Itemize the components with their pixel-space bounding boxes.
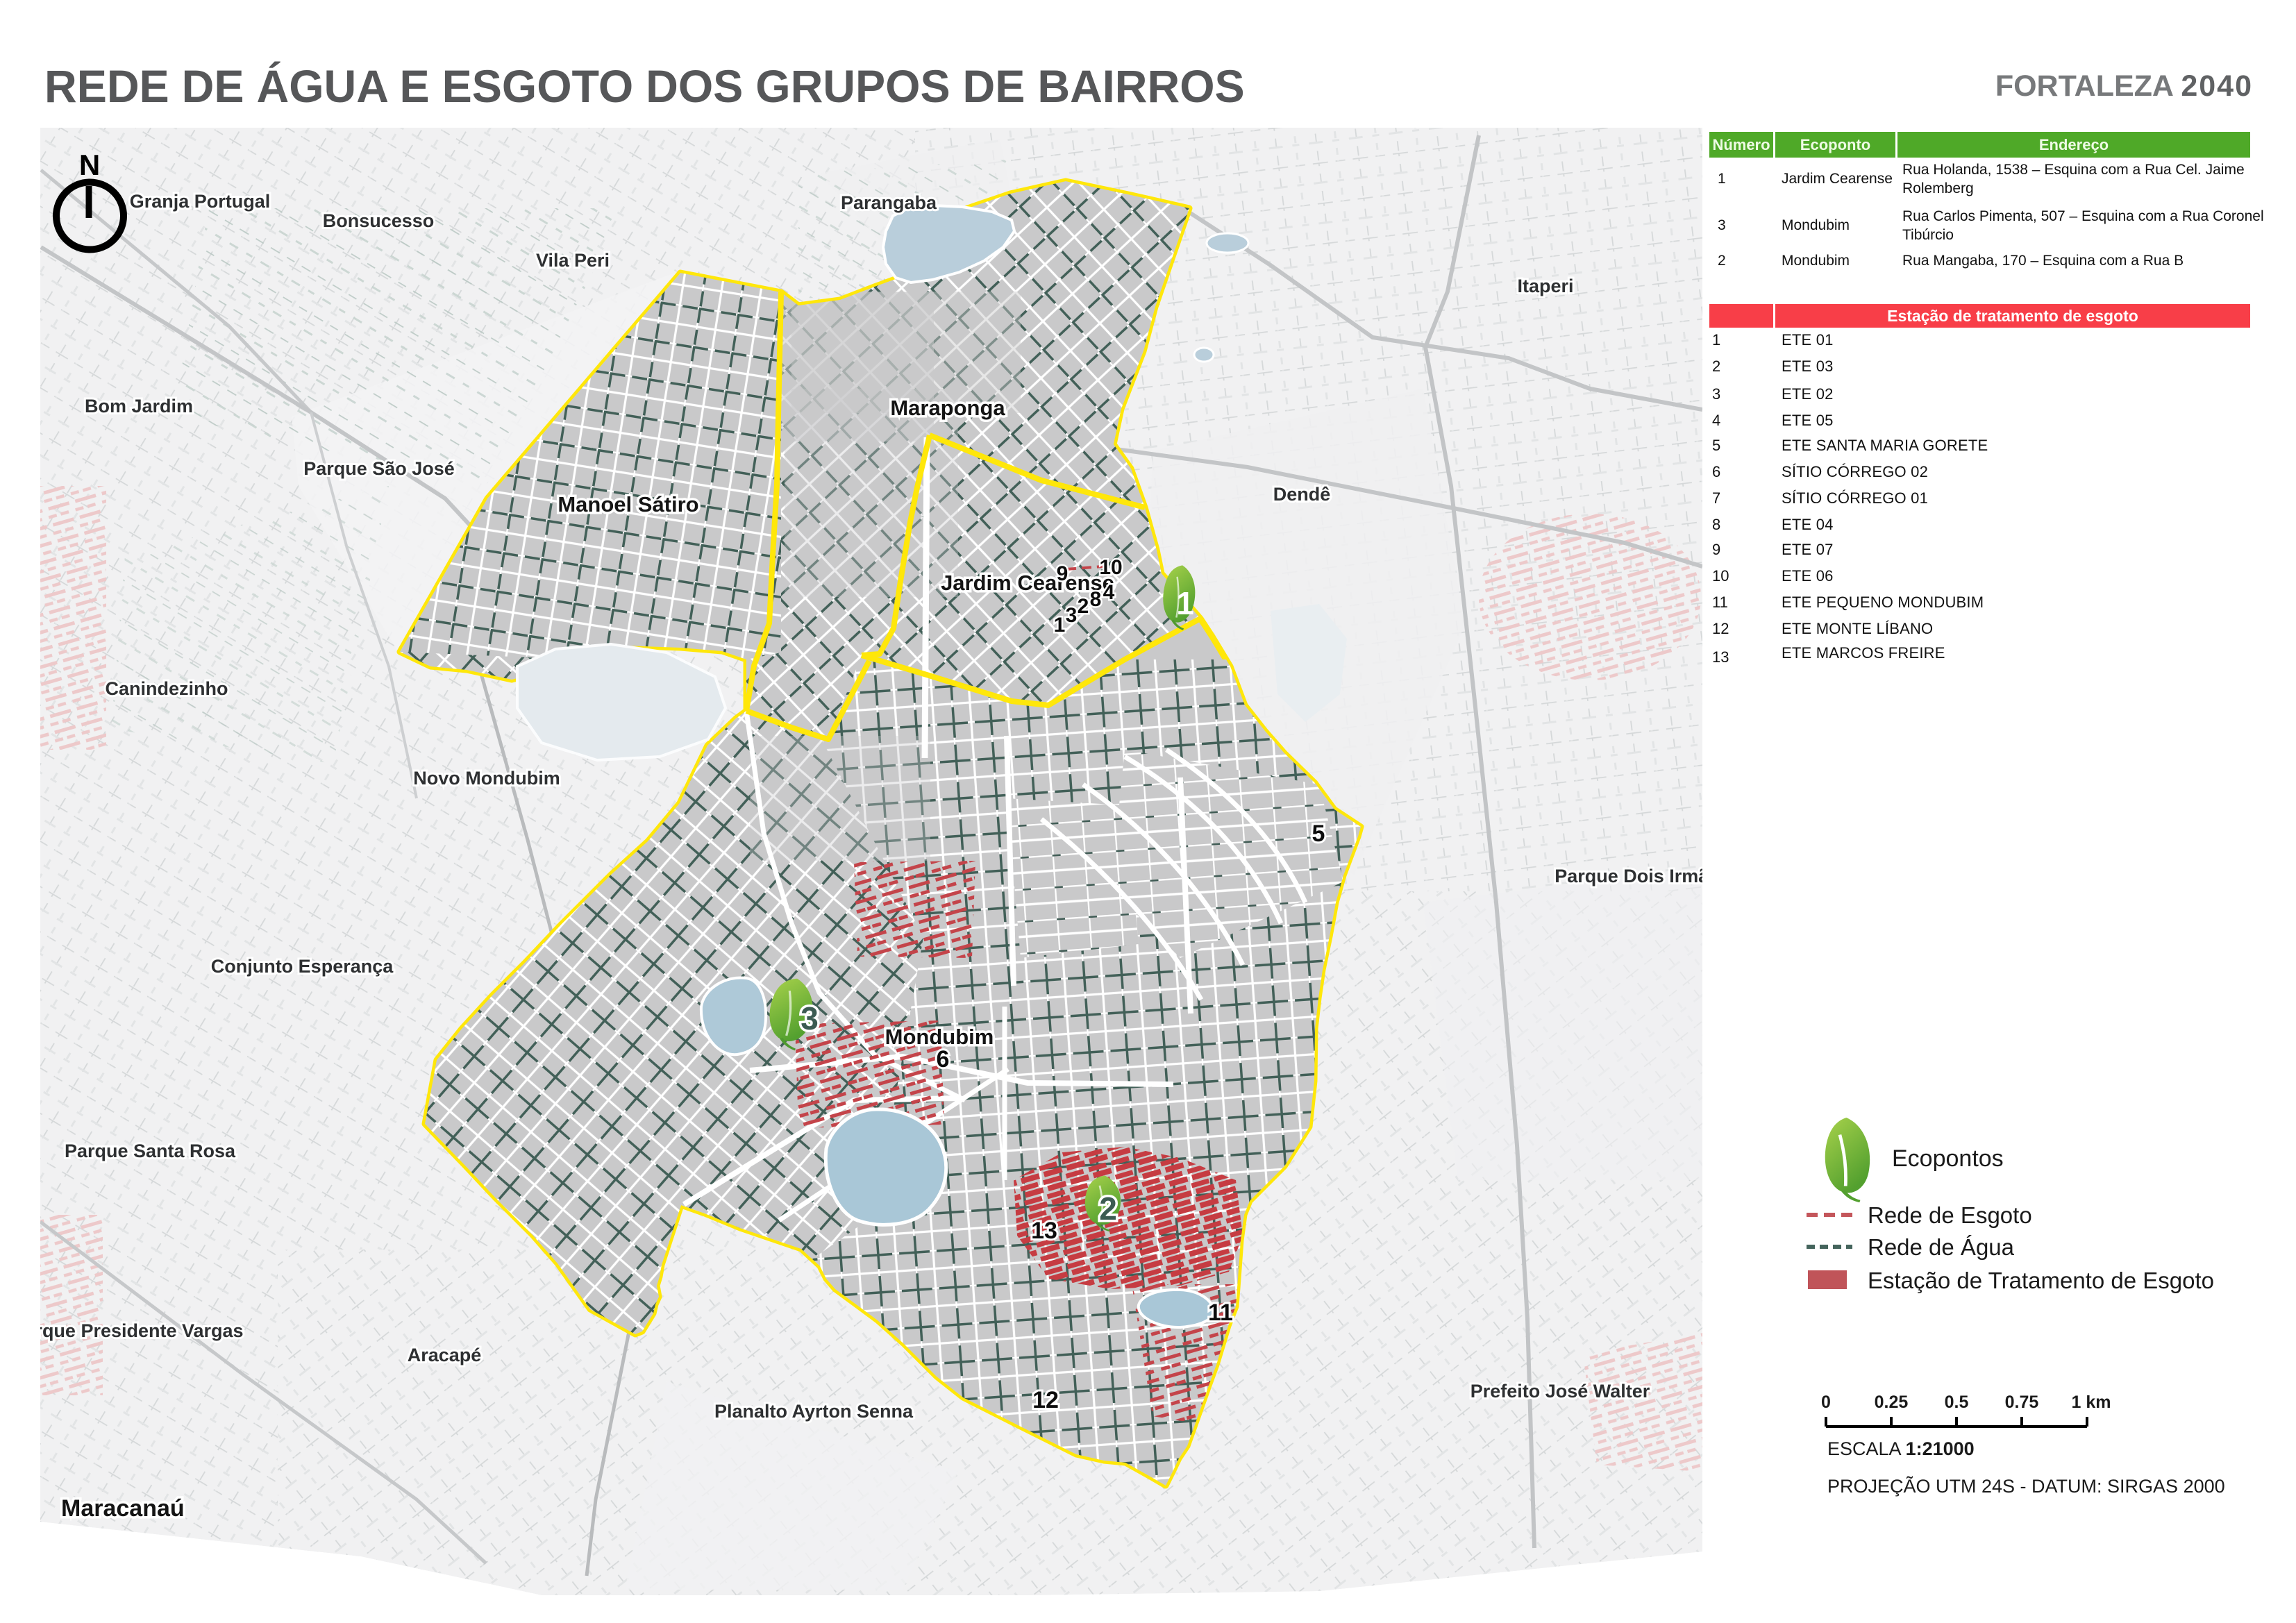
svg-text:12: 12 bbox=[1032, 1387, 1059, 1413]
svg-text:PROJEÇÃO UTM 24S - DATUM: SIRG: PROJEÇÃO UTM 24S - DATUM: SIRGAS 2000 bbox=[1827, 1475, 2225, 1497]
svg-text:Parque Santa Rosa: Parque Santa Rosa bbox=[65, 1141, 236, 1161]
svg-text:1: 1 bbox=[1054, 614, 1066, 637]
svg-text:Parangaba: Parangaba bbox=[841, 192, 937, 213]
svg-text:3: 3 bbox=[1066, 604, 1078, 627]
svg-text:6: 6 bbox=[937, 1046, 950, 1073]
svg-text:4: 4 bbox=[1103, 581, 1115, 604]
svg-text:Maracanaú: Maracanaú bbox=[61, 1495, 185, 1522]
svg-text:13: 13 bbox=[1031, 1218, 1057, 1244]
svg-text:5: 5 bbox=[1312, 821, 1325, 847]
svg-text:1: 1 bbox=[1176, 585, 1194, 621]
svg-text:Dendê: Dendê bbox=[1273, 484, 1331, 505]
svg-text:1 km: 1 km bbox=[2072, 1393, 2111, 1412]
svg-text:Bom Jardim: Bom Jardim bbox=[85, 396, 193, 417]
svg-text:Jardim Cearense: Jardim Cearense bbox=[941, 571, 1114, 595]
svg-text:Manoel Sátiro: Manoel Sátiro bbox=[558, 492, 698, 516]
svg-text:0.75: 0.75 bbox=[2005, 1393, 2039, 1412]
svg-text:Parque Presidente Vargas: Parque Presidente Vargas bbox=[40, 1320, 244, 1341]
svg-text:ESCALA 1:21000: ESCALA 1:21000 bbox=[1827, 1438, 1975, 1459]
svg-text:Prefeito José Walter: Prefeito José Walter bbox=[1470, 1381, 1650, 1402]
svg-text:Aracapé: Aracapé bbox=[408, 1345, 482, 1365]
svg-text:2: 2 bbox=[1099, 1191, 1117, 1227]
svg-text:10: 10 bbox=[1099, 556, 1122, 579]
svg-text:0: 0 bbox=[1821, 1393, 1831, 1412]
svg-text:9: 9 bbox=[1057, 562, 1069, 585]
svg-text:Bonsucesso: Bonsucesso bbox=[323, 210, 435, 231]
svg-text:Vila Peri: Vila Peri bbox=[536, 250, 610, 271]
svg-text:Mondubim: Mondubim bbox=[885, 1025, 994, 1049]
svg-text:Planalto Ayrton Senna: Planalto Ayrton Senna bbox=[714, 1401, 914, 1422]
svg-text:Parque São José: Parque São José bbox=[303, 458, 455, 479]
svg-text:Novo Mondubim: Novo Mondubim bbox=[413, 768, 560, 789]
svg-text:Itaperi: Itaperi bbox=[1517, 276, 1573, 296]
svg-text:Parque Dois Irmãos: Parque Dois Irmãos bbox=[1555, 866, 1702, 886]
svg-text:Canindezinho: Canindezinho bbox=[106, 678, 228, 699]
svg-text:8: 8 bbox=[1090, 588, 1102, 611]
svg-text:Granja Portugal: Granja Portugal bbox=[130, 191, 271, 212]
svg-text:11: 11 bbox=[1208, 1300, 1233, 1326]
svg-text:0.25: 0.25 bbox=[1875, 1393, 1909, 1412]
svg-text:2: 2 bbox=[1078, 595, 1089, 618]
svg-text:Conjunto Esperança: Conjunto Esperança bbox=[211, 956, 394, 977]
svg-text:3: 3 bbox=[801, 1000, 819, 1036]
svg-text:0.5: 0.5 bbox=[1945, 1393, 1969, 1412]
svg-text:Maraponga: Maraponga bbox=[890, 396, 1005, 420]
svg-text:N: N bbox=[79, 149, 100, 181]
